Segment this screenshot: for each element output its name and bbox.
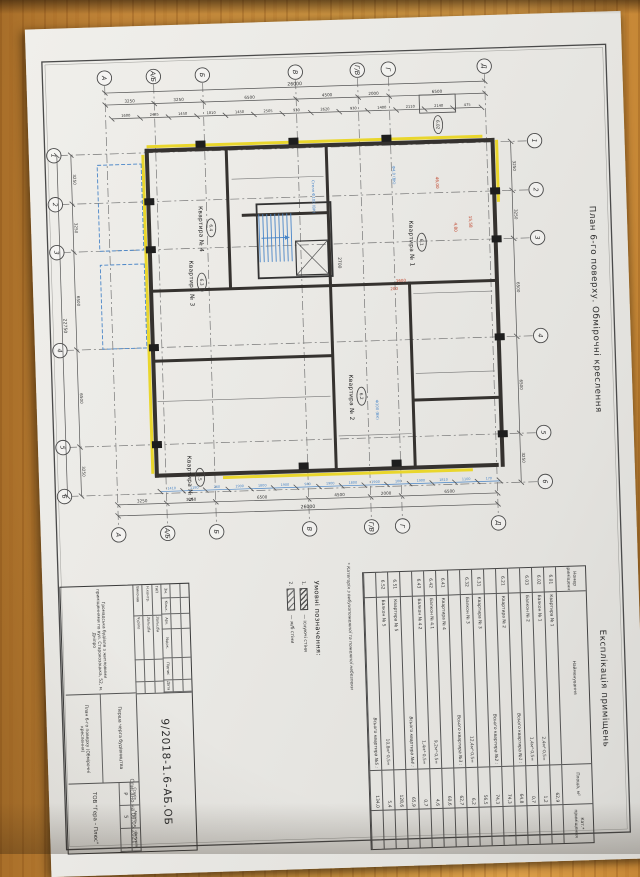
axis-line-А [105, 86, 119, 527]
dim-value: 6500 [519, 379, 524, 390]
dim-value: 1100 [462, 477, 471, 481]
column [149, 344, 159, 351]
red-note: 200 [390, 286, 398, 291]
column [195, 140, 205, 147]
column [498, 430, 508, 437]
dim-value: 930 [293, 108, 301, 112]
dim-value: 6500 [432, 89, 443, 94]
axis-bubble-bottom-1: 1 [49, 154, 57, 158]
dim-value: 1400 [377, 105, 387, 109]
partition-line [339, 434, 412, 436]
cell-room-number: 6.51 [387, 572, 400, 597]
room-label-6.3: Квартира № 3 [187, 260, 194, 306]
sheet-name-zone: Перша черга будівництваПлан 6-го поверху… [66, 693, 139, 784]
dim-value: 22750 [62, 319, 68, 334]
dim-value: 3250 [124, 98, 135, 103]
cell-room-area: 60,6 [441, 768, 454, 808]
column [144, 198, 154, 205]
phase-name: Перша черга будівництва [100, 693, 138, 782]
axis-line-5 [70, 433, 536, 448]
dim-value: 3250 [72, 174, 77, 185]
cell-room-area: 1,2 [537, 765, 550, 805]
wall-interior [225, 148, 232, 289]
column [490, 187, 500, 194]
balcony-outline [100, 264, 147, 349]
axis-bubble-right-А: А [114, 532, 122, 538]
cell-room-number: 6.03 [519, 568, 532, 593]
signature-name: Зальцба [152, 615, 163, 659]
partition-line [158, 396, 331, 401]
revision-cell [179, 584, 189, 599]
signature-name: Чуріло [133, 616, 144, 660]
drawing-sheet-landscape: 112233445566ААА/БА/БББВВГ/ВГ/ВГГДД325032… [30, 37, 640, 865]
dim-value: 1900 [326, 481, 335, 485]
cell-room-area: 5,4 [381, 770, 394, 810]
column [495, 333, 505, 340]
dim-chain [118, 493, 498, 505]
cell-room-number: 6.21 [495, 569, 508, 594]
partition-line [232, 176, 324, 179]
dim-value: 26000 [301, 504, 316, 510]
axis-bubble-bottom-5: 5 [59, 445, 67, 449]
revision-header: Дата [163, 680, 173, 693]
wall-interior [153, 354, 332, 363]
revision-header: №док. [162, 629, 172, 659]
dim-value: 4500 [334, 492, 345, 497]
dim-chain [71, 155, 82, 496]
stair-tread [291, 213, 293, 261]
room-label-6.2: Квартира № 2 [347, 374, 354, 420]
legend-item: 1.— існуючі стіни [299, 581, 312, 731]
signature-date [154, 681, 164, 693]
wall-hatch-swatch [287, 589, 296, 611]
revision-cell [179, 598, 189, 614]
stair-tread [259, 214, 261, 262]
legend: Умовні позначення: 1.— існуючі стіни2.— … [286, 581, 325, 732]
dim-value: 3250 [512, 160, 517, 171]
header-room-name: Найменування [556, 591, 591, 765]
column [381, 135, 391, 142]
dim-chain [511, 141, 522, 482]
dim-value: 1410 [167, 486, 176, 490]
cell-room-cat [395, 810, 408, 848]
cell-room-number [483, 569, 496, 594]
column [392, 459, 402, 466]
cell-room-number [507, 568, 520, 593]
revision-cell [170, 598, 180, 614]
signature-role: Виконав [132, 585, 142, 616]
dim-value: 930 [350, 106, 358, 110]
dim-value: 3250 [173, 97, 184, 102]
photo-of-floor-plan: { "page": { "background_wood": "#c08438"… [0, 0, 640, 854]
wall-interior [408, 282, 417, 468]
cell-room-number: 6.52 [375, 572, 388, 597]
cell-room-area: 64,8 [513, 766, 526, 806]
axis-bubble-top-4: 4 [536, 333, 544, 337]
legend-item-label: — існуючі стіни [302, 614, 308, 652]
dim-value: 2620 [320, 107, 330, 111]
cell-room-cat [407, 810, 420, 848]
column [299, 462, 309, 469]
header-room-area: Площа, м² [561, 764, 592, 805]
revision-cell [180, 614, 190, 629]
signature-date [135, 682, 145, 694]
signature-role: ГАП [151, 585, 161, 616]
cell-room-cat [455, 808, 468, 846]
company-name: ТОВ "Гера – Плюс" [69, 783, 121, 854]
cell-room-area: 128,6 [393, 770, 406, 810]
revision-cell [181, 658, 191, 680]
signature-name: Зальцба [143, 615, 154, 659]
cell-room-area: 62,9 [549, 765, 562, 805]
dim-value: 2000 [381, 490, 392, 495]
axis-bubble-top-1: 1 [530, 138, 538, 142]
dim-value: 1810 [207, 111, 217, 115]
wall-interior [413, 396, 501, 402]
dim-value: 2140 [434, 104, 444, 108]
revision-header: Кільк. [161, 599, 171, 615]
cell-room-area: 6,2 [465, 768, 478, 808]
paper-sheet: 112233445566ААА/БА/БББВВГ/ВГ/ВГГДД325032… [25, 11, 640, 877]
cell-room-area: 65,9 [405, 770, 418, 810]
cell-room-area: 74,3 [501, 767, 514, 807]
dim-value: 26000 [287, 81, 302, 87]
cell-room-number [399, 572, 412, 597]
cell-room-area: 0,7 [417, 769, 430, 809]
cell-room-number: 6.41 [435, 571, 448, 596]
room-label-6.5: Квартира № 5 [185, 455, 192, 501]
dim-value: 3250 [521, 452, 526, 463]
cell-area-calc: 1,4м²·0,5= [528, 737, 534, 763]
cell-room-cat [419, 809, 432, 847]
column [152, 441, 162, 448]
axis-bubble-top-5: 5 [539, 430, 547, 434]
axis-bubble-left-В: В [291, 70, 299, 75]
cell-area-calc: 12,4м²·0,5= [468, 736, 474, 765]
legend-item-label: — ж/б стіни [289, 615, 295, 644]
axis-line-4 [67, 336, 533, 351]
axis-bubble-top-2: 2 [532, 187, 540, 191]
axis-bubble-left-А/Б: А/Б [149, 70, 157, 83]
revision-cell [180, 628, 190, 658]
dim-value: 1900 [371, 480, 380, 484]
column [288, 138, 298, 145]
stair-dim: 2700 [336, 257, 342, 269]
title-block: Зм.Кільк.Арк.№док.ПідписДатаГАПЗальцбаН.… [59, 583, 197, 855]
dim-value: 475 [464, 103, 471, 107]
dim-value: 100 [395, 479, 402, 483]
cell-room-cat [383, 810, 396, 848]
explication-table: Номер приміщення Найменування Площа, м² … [362, 565, 595, 850]
signature-date [145, 681, 155, 693]
dim-value: 3250 [81, 466, 86, 477]
cell-room-cat [502, 807, 515, 845]
dim-value: 1600 [121, 113, 131, 117]
revision-cell [182, 679, 192, 692]
partition-line [413, 291, 492, 293]
dim-value: 2110 [406, 105, 416, 109]
dim-value: 940 [304, 482, 311, 486]
dim-value: 4500 [322, 92, 333, 97]
dim-value: 3250 [137, 498, 148, 503]
blue-note: Стеля Ф100 (ВК) [311, 180, 317, 214]
red-note: 1600 [396, 278, 407, 283]
axis-bubble-top-3: 3 [533, 235, 541, 239]
dim-value: 6500 [516, 282, 521, 293]
sheet-name: План 6-го поверху (Обмірочні креслення) [66, 695, 103, 784]
column [492, 235, 502, 242]
cell-room-cat [538, 805, 551, 843]
dim-value: 1450 [178, 112, 188, 116]
cell-room-cat [478, 807, 491, 845]
room-label-6.4: Квартира № 4 [196, 206, 203, 252]
red-note: 46,00 [435, 177, 440, 189]
dim-value: 6500 [244, 95, 255, 100]
axis-bubble-right-А/Б: А/Б [163, 527, 171, 540]
dim-value: 1810 [439, 478, 448, 482]
red-note: 15,58 [468, 216, 473, 228]
cell-area-calc: 10,8м²·0,5= [384, 739, 390, 768]
project-name: Громадська будівля з житловими приміщенн… [62, 585, 135, 695]
column [146, 246, 156, 253]
signature-sign [144, 659, 154, 681]
dim-value: 3250 [513, 209, 518, 220]
cell-room-number: 6.42 [423, 571, 436, 596]
legend-item-number: 1. [301, 581, 306, 586]
red-note: 4,80 [453, 222, 458, 232]
cell-room-area: 4,6 [429, 769, 442, 809]
axis-bubble-left-А: А [100, 75, 108, 81]
dim-value: 2000 [368, 91, 379, 96]
legend-item-number: 2. [288, 581, 293, 586]
revision-cell [172, 658, 182, 680]
cell-area-calc: 9,2м²·0,5= [432, 740, 438, 766]
dim-value: 3250 [74, 223, 79, 234]
header-room-cat: Кат.* приміщення [562, 804, 593, 843]
signature-sign [135, 660, 145, 682]
header-room-number: Номер приміщення [555, 566, 586, 592]
cell-room-area: 74,3 [489, 767, 502, 807]
cell-area-calc: 1,4м²·0,5= [420, 740, 426, 766]
axis-bubble-right-Д: Д [494, 519, 502, 525]
room-tag: 6.1 [418, 239, 424, 246]
axis-bubble-top-6: 6 [541, 479, 549, 483]
axis-bubble-left-Д: Д [480, 63, 488, 69]
room-tag: 6.2 [358, 393, 364, 400]
cell-room-cat [371, 811, 384, 849]
balcony-tag: 6.02 [435, 120, 440, 130]
wall-interior [325, 145, 338, 470]
revision-header: Зм. [160, 584, 170, 599]
cell-room-cat [514, 806, 527, 844]
balcony-outline [97, 164, 144, 251]
revision-cell [171, 614, 181, 629]
revision-header: Підпис [163, 658, 173, 680]
cell-room-area: 62,7 [453, 768, 466, 808]
dim-value: 6500 [444, 488, 455, 493]
cell-room-number: 6.32 [459, 570, 472, 595]
axis-bubble-right-В: В [305, 527, 313, 532]
dim-value: 1900 [235, 484, 244, 488]
room-label-6.1: Квартира № 1 [407, 220, 414, 266]
cell-room-number: 6.31 [471, 569, 484, 594]
axis-bubble-left-Г/В: Г/В [353, 65, 361, 75]
revision-header: Арк. [161, 615, 171, 630]
room-tag: 6.3 [198, 279, 204, 286]
dim-value: 1900 [416, 478, 425, 482]
cell-room-number [447, 570, 460, 595]
room-tag: 6.4 [207, 224, 213, 231]
dim-value: 2505 [263, 109, 272, 113]
cell-room-area: 56,5 [477, 767, 490, 807]
signature-role: Н.контр. [142, 585, 152, 616]
axis-bubble-right-Г/В: Г/В [367, 522, 375, 532]
cell-room-cat [443, 808, 456, 846]
dim-value: 6500 [257, 494, 268, 499]
revision-cell [171, 629, 181, 659]
cell-room-cat [431, 809, 444, 847]
blue-note: Ф4,0 (ВК) [391, 166, 397, 185]
titleblock-top: Зм.Кільк.Арк.№док.ПідписДатаГАПЗальцбаН.… [132, 584, 196, 852]
dim-value: 260 [214, 485, 221, 489]
cell-room-number: 6.02 [531, 568, 544, 593]
cell-room-number: 6.01 [543, 567, 556, 592]
axis-bubble-bottom-2: 2 [51, 203, 59, 207]
doc-number: 9/2018-1.6-АБ.ОБ [136, 693, 197, 852]
axis-bubble-bottom-6: 6 [60, 494, 68, 498]
cell-room-area: 134,0 [369, 771, 382, 811]
dim-value: 6500 [76, 296, 81, 307]
dim-value: 1450 [235, 110, 245, 114]
blue-note: Ф100 (ВК) [375, 400, 381, 421]
dim-value: 6500 [79, 393, 84, 404]
cell-room-cat [467, 808, 480, 846]
wall-hatch-swatch [300, 588, 309, 610]
partition-line [416, 371, 495, 373]
dim-value: 1900 [281, 483, 290, 487]
revision-cell [170, 584, 180, 599]
signature-sign [153, 659, 163, 681]
cell-room-cat [526, 806, 539, 844]
dim-value: 2485 [150, 113, 159, 117]
cell-room-cat [490, 807, 503, 845]
cell-room-cat [550, 805, 563, 843]
revision-grid: Зм.Кільк.Арк.№док.ПідписДатаГАПЗальцбаН.… [132, 584, 191, 695]
revision-cell [173, 680, 183, 693]
dim-value: 1800 [258, 483, 267, 487]
dim-value: 170 [486, 476, 493, 480]
axis-bubble-bottom-4: 4 [55, 348, 63, 352]
cell-room-area: 0,7 [525, 766, 538, 806]
cell-room-number [363, 573, 376, 598]
dim-value: 1800 [349, 481, 358, 485]
cell-room-number: 6.43 [411, 571, 424, 596]
table-edge-shadow [0, 0, 640, 14]
cell-area-calc: 2,4м²·0,5= [540, 736, 546, 762]
axis-bubble-bottom-3: 3 [52, 251, 60, 255]
